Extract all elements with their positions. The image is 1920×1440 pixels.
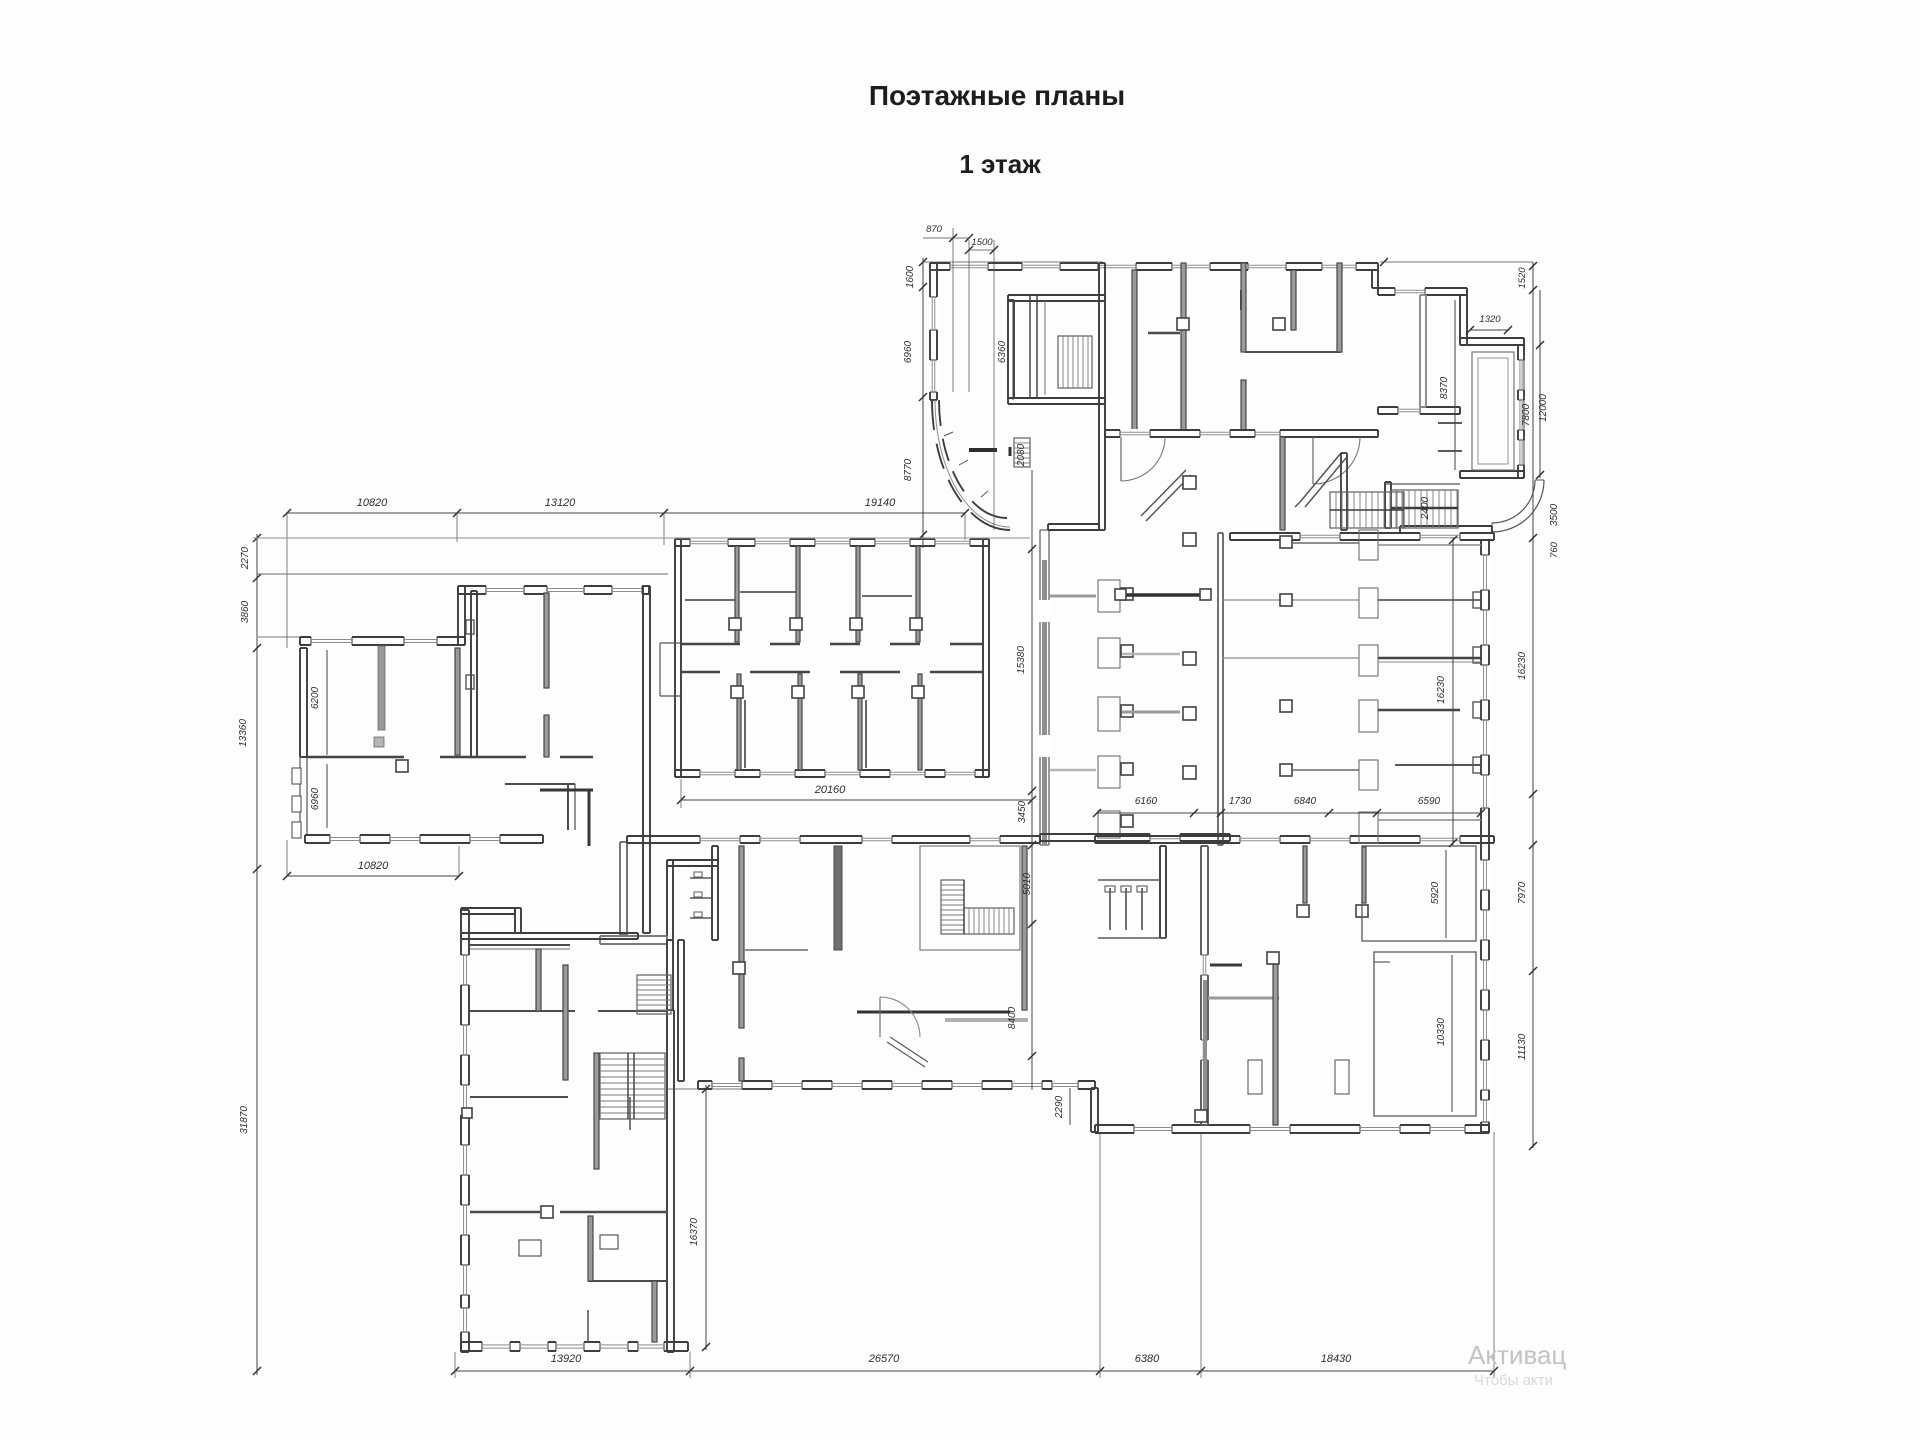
svg-text:16230: 16230	[1517, 652, 1528, 680]
svg-text:1520: 1520	[1517, 267, 1528, 289]
svg-text:13120: 13120	[545, 497, 576, 509]
svg-text:12000: 12000	[1538, 394, 1549, 422]
svg-text:6380: 6380	[1135, 1353, 1160, 1365]
svg-text:18430: 18430	[1321, 1353, 1352, 1365]
svg-text:6160: 6160	[1135, 796, 1158, 807]
svg-text:8770: 8770	[903, 458, 914, 481]
svg-text:16370: 16370	[689, 1218, 700, 1246]
svg-text:19140: 19140	[865, 497, 896, 509]
svg-text:10820: 10820	[357, 497, 388, 509]
svg-text:2400: 2400	[1420, 496, 1431, 520]
svg-text:760: 760	[1549, 541, 1560, 558]
svg-text:1320: 1320	[1479, 314, 1501, 325]
svg-text:13920: 13920	[551, 1353, 582, 1365]
svg-text:1500: 1500	[971, 237, 993, 248]
svg-text:26570: 26570	[868, 1353, 900, 1365]
svg-text:1600: 1600	[905, 265, 916, 288]
svg-text:20160: 20160	[814, 784, 846, 796]
svg-text:1730: 1730	[1229, 796, 1252, 807]
svg-text:7800: 7800	[1521, 403, 1532, 426]
svg-text:16230: 16230	[1436, 676, 1447, 704]
svg-text:3860: 3860	[240, 600, 251, 623]
svg-text:8400: 8400	[1007, 1006, 1018, 1029]
svg-text:2080: 2080	[1016, 443, 1027, 467]
svg-text:6960: 6960	[903, 340, 914, 363]
svg-text:5920: 5920	[1430, 881, 1441, 904]
svg-text:10330: 10330	[1436, 1018, 1447, 1046]
svg-text:6840: 6840	[1294, 796, 1317, 807]
svg-text:870: 870	[926, 224, 943, 235]
svg-text:2270: 2270	[240, 546, 251, 570]
svg-text:6590: 6590	[1418, 796, 1441, 807]
svg-text:10820: 10820	[358, 860, 389, 872]
svg-text:6200: 6200	[310, 686, 321, 709]
svg-text:13360: 13360	[238, 719, 249, 747]
svg-text:3500: 3500	[1549, 503, 1560, 526]
svg-text:5010: 5010	[1022, 872, 1033, 895]
svg-text:8370: 8370	[1439, 376, 1450, 399]
svg-text:6360: 6360	[997, 340, 1008, 363]
svg-text:31870: 31870	[239, 1106, 250, 1134]
svg-text:3450: 3450	[1017, 800, 1028, 823]
svg-text:15380: 15380	[1016, 646, 1027, 674]
svg-text:2290: 2290	[1054, 1095, 1065, 1119]
svg-text:11130: 11130	[1517, 1033, 1528, 1060]
svg-text:6960: 6960	[310, 787, 321, 810]
svg-text:7970: 7970	[1517, 881, 1528, 904]
